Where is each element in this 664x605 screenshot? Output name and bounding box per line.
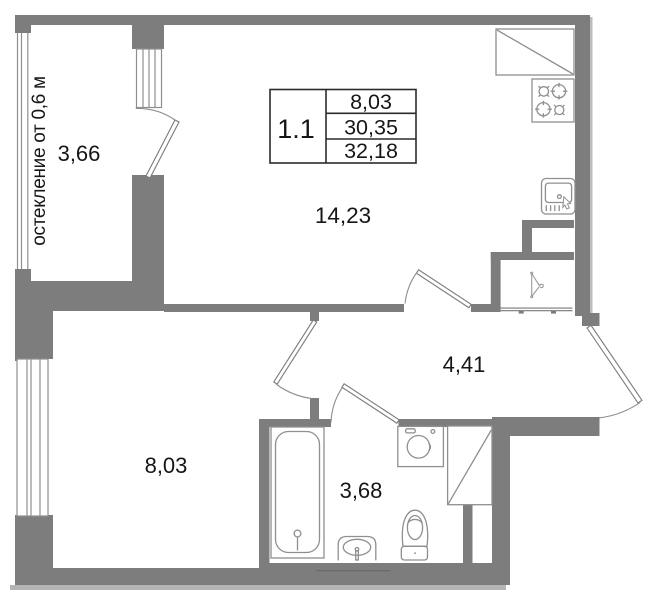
- svg-text:3,68: 3,68: [340, 478, 383, 503]
- svg-text:8,03: 8,03: [145, 453, 188, 478]
- svg-text:30,35: 30,35: [344, 116, 398, 140]
- svg-text:14,23: 14,23: [315, 203, 371, 228]
- svg-text:32,18: 32,18: [344, 139, 398, 163]
- svg-text:8,03: 8,03: [350, 90, 392, 114]
- svg-text:4,41: 4,41: [443, 352, 486, 377]
- svg-text:остекление от 0,6 м: остекление от 0,6 м: [29, 76, 50, 245]
- svg-text:3,66: 3,66: [58, 141, 101, 166]
- svg-text:1.1: 1.1: [277, 114, 315, 144]
